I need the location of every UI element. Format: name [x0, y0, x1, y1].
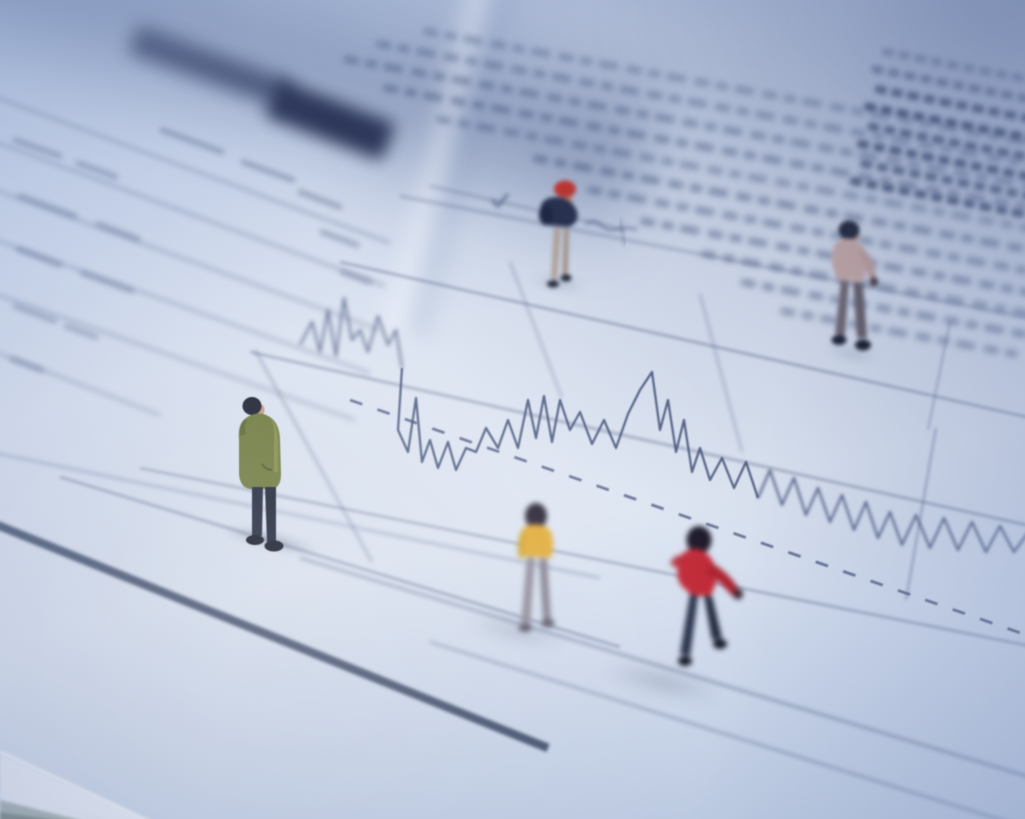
photo-canvas — [0, 0, 1025, 819]
paper-stack-corner — [0, 752, 152, 819]
red-cap-figure-arm — [539, 205, 553, 225]
red-figure-left-leg — [680, 594, 698, 656]
green-figure-left-shoe — [246, 535, 264, 545]
walking-figure-left-leg — [835, 280, 849, 336]
figure-red-jacket — [652, 522, 772, 702]
red-cap-figure-left-shoe — [547, 281, 559, 288]
figure-green-coat — [228, 388, 308, 563]
walking-figure-right-leg — [853, 282, 867, 338]
yellow-figure-right-leg — [539, 558, 551, 620]
walking-figure-right-shoe — [855, 340, 871, 351]
green-figure-left-leg — [252, 487, 263, 536]
stock-zigzag-line — [300, 298, 1025, 552]
yellow-figure-right-foot — [542, 619, 555, 627]
yellow-figure-top — [520, 524, 553, 558]
red-figure-left-shoe — [678, 656, 692, 666]
red-figure-right-shoe — [713, 639, 727, 649]
walking-figure-hand — [870, 277, 879, 287]
figure-red-cap — [520, 176, 592, 301]
yellow-figure-left-foot — [519, 624, 532, 632]
walking-figure-left-shoe — [832, 335, 847, 345]
figure-walking — [815, 218, 905, 368]
red-figure-hand — [733, 589, 743, 600]
red-cap-figure-left-leg — [551, 227, 561, 280]
red-cap-figure-cap — [554, 181, 576, 198]
red-cap-figure-right-shoe — [561, 275, 572, 282]
printed-page-graphics — [0, 0, 1025, 819]
green-figure-hair — [243, 397, 262, 415]
red-figure-right-leg — [704, 596, 722, 640]
green-figure-right-shoe — [265, 541, 284, 552]
green-figure-right-leg — [265, 487, 276, 542]
walking-figure-hair — [839, 221, 860, 240]
yellow-figure-left-leg — [521, 557, 535, 626]
figure-yellow-top — [503, 500, 575, 650]
red-cap-figure-right-leg — [562, 228, 569, 275]
